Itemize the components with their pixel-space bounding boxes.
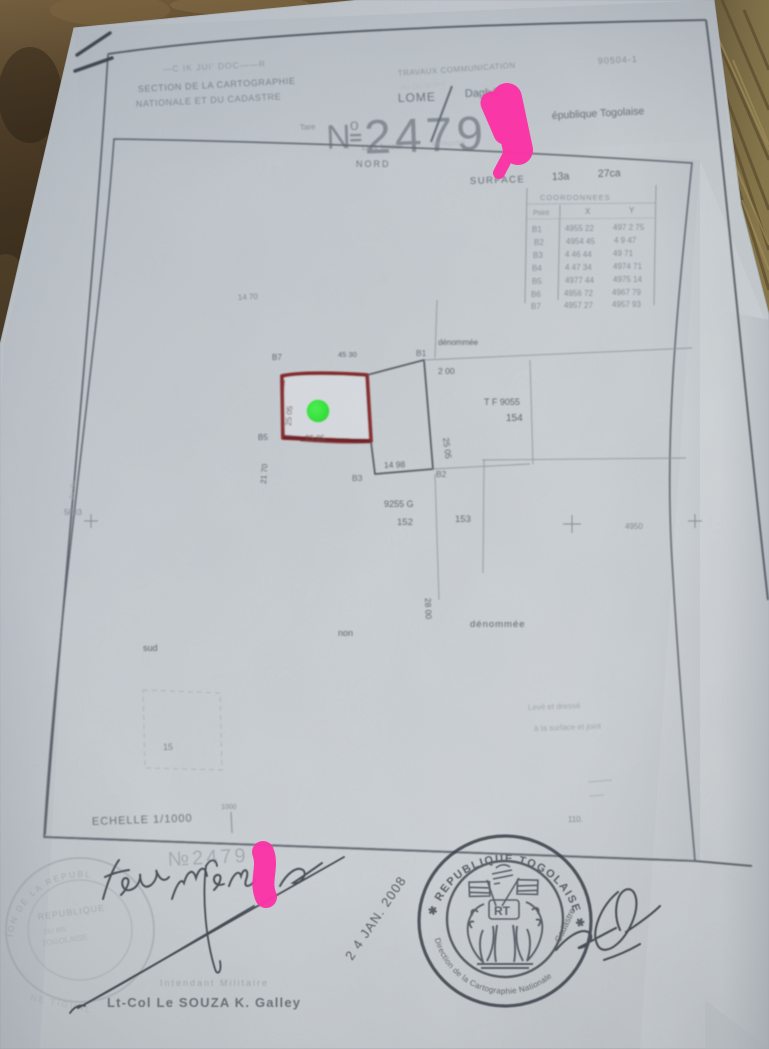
- svg-text:49 71: 49 71: [613, 249, 634, 258]
- svg-text:non: non: [338, 628, 353, 638]
- svg-text:B3: B3: [533, 251, 543, 260]
- svg-text:dénommée: dénommée: [470, 619, 526, 630]
- svg-text:25 05: 25 05: [284, 405, 294, 426]
- svg-text:14 70: 14 70: [238, 292, 259, 302]
- svg-text:90504-1: 90504-1: [598, 54, 638, 66]
- svg-text:25 05: 25 05: [305, 434, 326, 443]
- svg-text:9255 G: 9255 G: [384, 499, 414, 509]
- svg-text:sud: sud: [143, 643, 158, 653]
- svg-text:Intendant Militaire: Intendant Militaire: [160, 978, 269, 988]
- svg-text:Lt-Col Le SOUZA K. Galley: Lt-Col Le SOUZA K. Galley: [107, 995, 301, 1010]
- svg-text:B6: B6: [531, 290, 541, 299]
- svg-text:45 30: 45 30: [338, 350, 357, 359]
- svg-text:B2: B2: [534, 238, 544, 247]
- svg-text:2479: 2479: [363, 107, 488, 164]
- svg-text:14 98: 14 98: [384, 459, 406, 470]
- svg-text:13a: 13a: [552, 170, 570, 183]
- svg-text:4 46 44: 4 46 44: [565, 250, 592, 259]
- svg-text:497 2 75: 497 2 75: [613, 223, 645, 232]
- svg-text:B7: B7: [531, 302, 541, 311]
- svg-text:2 00: 2 00: [438, 366, 455, 376]
- svg-text:15: 15: [163, 742, 173, 752]
- svg-text:o: o: [350, 117, 360, 134]
- svg-text:4975 14: 4975 14: [613, 275, 642, 284]
- svg-text:Tare: Tare: [300, 122, 317, 132]
- svg-text:4957 93: 4957 93: [612, 300, 641, 309]
- svg-text:4974 71: 4974 71: [613, 262, 642, 271]
- svg-text:5003: 5003: [64, 508, 82, 517]
- svg-text:28 00: 28 00: [423, 598, 434, 620]
- svg-text:4955 22: 4955 22: [565, 224, 594, 233]
- svg-text:№2479: №2479: [167, 845, 249, 871]
- svg-text:dénommée: dénommée: [438, 338, 479, 347]
- svg-text:LOME: LOME: [398, 90, 436, 105]
- svg-text:B4: B4: [532, 264, 542, 273]
- svg-text:Levé et dressé: Levé et dressé: [528, 701, 581, 712]
- svg-text:Point: Point: [533, 210, 549, 217]
- svg-text:B5: B5: [532, 277, 542, 286]
- svg-text:1000: 1000: [221, 804, 237, 811]
- svg-text:N: N: [326, 118, 352, 157]
- svg-text:X: X: [585, 207, 591, 216]
- svg-text:B1: B1: [532, 225, 542, 234]
- svg-text:4956 72: 4956 72: [564, 289, 593, 298]
- svg-text:110.: 110.: [568, 815, 583, 824]
- svg-text:4 47 34: 4 47 34: [565, 263, 592, 272]
- svg-text:T F 9055: T F 9055: [484, 397, 520, 407]
- svg-text:154: 154: [506, 413, 523, 424]
- svg-text:21 70: 21 70: [259, 463, 269, 484]
- svg-text:B1: B1: [416, 348, 427, 358]
- svg-text:B2: B2: [436, 469, 447, 479]
- svg-text:NORD: NORD: [356, 159, 391, 169]
- svg-text:4954 45: 4954 45: [566, 237, 595, 246]
- svg-text:4977 44: 4977 44: [565, 276, 594, 285]
- svg-text:27ca: 27ca: [598, 167, 621, 180]
- svg-text:B7: B7: [272, 353, 282, 362]
- svg-text:RT: RT: [494, 904, 511, 918]
- svg-text:4 9 47: 4 9 47: [614, 236, 637, 245]
- svg-text:enregistré: enregistré: [432, 138, 466, 148]
- svg-text:152: 152: [397, 517, 413, 528]
- svg-text:Y: Y: [629, 206, 635, 215]
- svg-text:4950: 4950: [625, 522, 643, 531]
- svg-text:B3: B3: [352, 473, 363, 483]
- svg-text:4957 27: 4957 27: [564, 301, 593, 310]
- svg-text:B5: B5: [258, 433, 268, 442]
- svg-text:COORDONNEES: COORDONNEES: [540, 193, 611, 202]
- svg-text:4967 79: 4967 79: [612, 288, 641, 297]
- svg-text:153: 153: [455, 514, 471, 525]
- svg-text:Av du: Av du: [67, 480, 78, 500]
